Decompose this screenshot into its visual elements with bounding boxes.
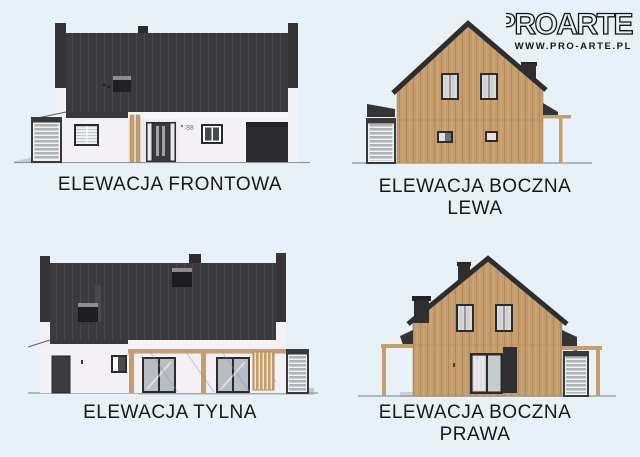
elevation-sheet: 88 bbox=[0, 0, 640, 457]
front-roof-eave-stub bbox=[367, 104, 395, 117]
window-left bbox=[74, 124, 99, 146]
rear-door bbox=[52, 356, 70, 393]
front-elevation-drawing: 88 bbox=[0, 20, 320, 170]
rear-elevation-drawing bbox=[0, 248, 320, 405]
wood-lattice-panel bbox=[253, 352, 274, 390]
right-gable-wall bbox=[288, 88, 298, 162]
caption-right-side-elevation: ELEWACJA BOCZNA PRAWA bbox=[330, 402, 620, 446]
logo-brand: PROARTE bbox=[506, 8, 632, 41]
roof-eave-left bbox=[66, 112, 128, 118]
roof-eave-left bbox=[50, 340, 128, 344]
roof-window-frame bbox=[113, 76, 131, 80]
ground-shadow bbox=[12, 157, 34, 162]
caption-line: LEWA bbox=[330, 198, 620, 220]
pergola-post bbox=[129, 353, 134, 393]
louvered-gate bbox=[287, 350, 308, 393]
right-gable-wall bbox=[276, 322, 286, 393]
pergola-beam bbox=[562, 346, 602, 350]
pergola-post bbox=[201, 353, 206, 393]
caption-left-side-elevation: ELEWACJA BOCZNA LEWA bbox=[330, 176, 620, 220]
eave-fascia bbox=[128, 112, 288, 118]
garage-opening bbox=[246, 122, 288, 162]
wall-lamp bbox=[453, 363, 455, 367]
sliding-door bbox=[142, 357, 176, 393]
pergola-post bbox=[559, 118, 563, 163]
garage-lintel-shadow bbox=[246, 122, 288, 127]
upper-window bbox=[480, 73, 498, 100]
caption-line: PRAWA bbox=[330, 424, 620, 446]
chimney bbox=[138, 26, 148, 34]
upper-window bbox=[456, 304, 474, 332]
caption-front-elevation: ELEWACJA FRONTOWA bbox=[20, 174, 320, 196]
glass-door bbox=[470, 353, 503, 394]
house-number: 88 bbox=[186, 125, 194, 132]
porch-post bbox=[130, 115, 134, 162]
roof-window bbox=[172, 268, 192, 287]
louvered-gate bbox=[367, 119, 395, 163]
left-gable-coping bbox=[40, 256, 50, 322]
wall-lamp bbox=[81, 360, 83, 364]
roof-vent bbox=[108, 86, 111, 89]
roof-window bbox=[78, 303, 98, 322]
logo-url: WWW.PRO-ARTE.PL bbox=[515, 41, 632, 52]
porch-post bbox=[136, 115, 140, 162]
caption-rear-elevation: ELEWACJA TYLNA bbox=[20, 402, 320, 424]
small-window bbox=[111, 355, 127, 373]
caption-line: ELEWACJA BOCZNA bbox=[330, 176, 620, 198]
upper-window bbox=[441, 73, 459, 100]
pergola-beam bbox=[381, 344, 413, 348]
louvered-gate bbox=[32, 118, 61, 162]
right-side-elevation-drawing bbox=[320, 248, 640, 405]
right-gable-coping bbox=[288, 23, 298, 88]
roof-vent bbox=[103, 84, 106, 87]
caption-line: ELEWACJA BOCZNA bbox=[330, 402, 620, 424]
entrance-door bbox=[146, 122, 176, 162]
chimney bbox=[414, 300, 429, 323]
sliding-door bbox=[216, 357, 250, 393]
dark-side-panel bbox=[503, 347, 517, 393]
window-right bbox=[201, 124, 223, 144]
upper-window bbox=[495, 304, 513, 332]
lower-window bbox=[437, 131, 453, 143]
chimney bbox=[189, 254, 201, 263]
house-number-lamp bbox=[181, 125, 183, 127]
lower-window bbox=[485, 131, 498, 142]
right-gable-coping bbox=[276, 253, 286, 322]
roof bbox=[50, 263, 276, 340]
pergola-post bbox=[596, 350, 600, 396]
louvered-gate bbox=[564, 352, 588, 396]
proarte-logo: PROARTE WWW.PRO-ARTE.PL bbox=[506, 6, 634, 58]
pergola-post bbox=[382, 348, 386, 396]
pergola-beam bbox=[543, 115, 571, 119]
roof bbox=[66, 33, 288, 112]
left-gable-coping bbox=[55, 23, 66, 88]
